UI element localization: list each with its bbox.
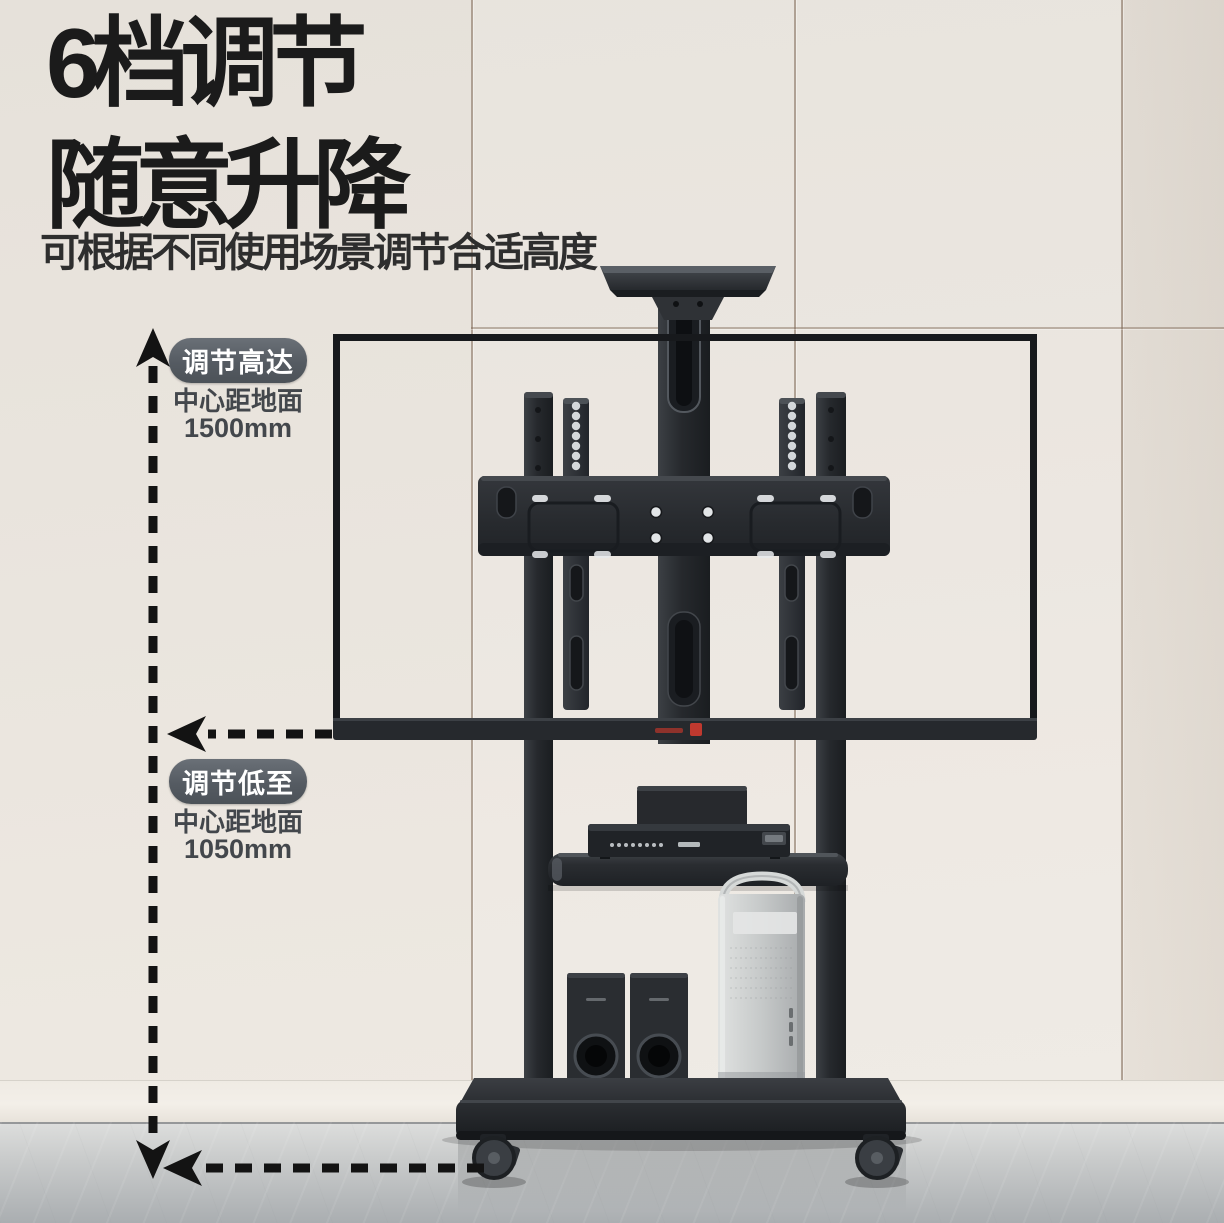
min-height-badge: 调节低至	[169, 759, 307, 804]
floor-reflection	[442, 1129, 922, 1212]
page-subtitle: 可根据不同使用场景调节合适高度	[40, 220, 595, 278]
arrow-down-icon	[136, 1140, 170, 1179]
annotation-min-height: 调节低至 中心距地面 1050mm	[158, 759, 318, 863]
min-height-caption: 中心距地面	[158, 809, 318, 835]
max-height-badge: 调节高达	[169, 338, 307, 383]
annotation-max-height: 调节高达 中心距地面 1500mm	[158, 338, 318, 442]
camera-tray	[600, 266, 776, 320]
pc-tower	[718, 876, 805, 1086]
media-player	[588, 824, 790, 859]
tv-bottom-bar	[333, 718, 1037, 740]
min-height-value: 1050mm	[158, 835, 318, 863]
arrow-left-icon-lower	[163, 1150, 202, 1186]
tower-label	[733, 912, 797, 934]
media-shelf	[548, 853, 848, 891]
page-title-line1: 6档调节	[46, 14, 359, 112]
product-infographic: 6档调节 随意升降 可根据不同使用场景调节合适高度 调节高达 中心距地面 150…	[0, 0, 1224, 1223]
arrow-left-icon-upper	[167, 716, 206, 752]
base-platform	[456, 1078, 906, 1140]
max-height-caption: 中心距地面	[158, 388, 318, 414]
mount-crossbar	[478, 476, 890, 558]
max-height-value: 1500mm	[158, 414, 318, 442]
soundbar	[637, 786, 747, 830]
